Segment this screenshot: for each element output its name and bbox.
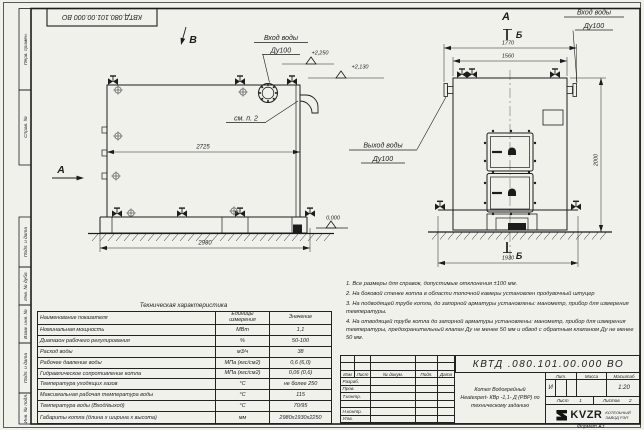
inlet-water-dn-front: Ду100 [583,23,604,30]
tech-row-unit: МПа (кгс/см2) [216,358,270,369]
document-title-line: Котел Водогрейный [474,386,525,394]
tech-row-value: 38 [270,347,331,358]
margin-label: Подп. и дата [23,227,29,257]
note-2: 2. На боковой стенке котла в области топ… [346,290,638,298]
margin-label: Инв. № подл. [23,394,29,424]
dim-2980: 2980 [197,241,212,247]
front-view [428,70,612,260]
view-letter-a: А [501,11,510,23]
tb-col-list: Лист [355,371,371,378]
tb-row-prov: Пров. [341,386,371,393]
front-view-texts: А Б Б 1770 1560 2000 1930 Вход воды Ду10… [363,9,612,262]
elev-2250: +2,250 [312,51,330,57]
kvzr-logo-icon [556,410,567,421]
tech-row-name: Температура уходящих газов [38,379,216,390]
tb-lit-value: И [546,380,556,397]
margin-labels: Перв. примен. Справ. № Подп. и дата Инв.… [23,33,29,423]
tech-row-name: Температура воды (Вход/выход) [38,401,216,412]
margin-label: Взам. инв. № [23,309,29,339]
tech-row-unit: МПа (кгс/см2) [216,369,270,380]
margin-label: Перв. примен. [23,33,29,65]
tech-row-name: Расход воды [38,347,216,358]
margin-label: Подп. и дата [23,353,29,383]
tb-sheets-label: Листов [603,398,620,403]
tech-table: Наименование показателя Единицы измерени… [37,311,332,424]
elev-2130: +2,130 [352,65,370,71]
section-letter-b-top: Б [516,30,523,40]
tech-row-name: Диапазон рабочего регулирования [38,336,216,347]
tb-sheet-value: 1 [579,398,582,403]
top-stamp-number: КВТД.080.101.00.000 ВО [62,13,142,20]
inlet-water-label-front: Вход воды [577,9,612,17]
tb-lit-value-row: И 1:20 [546,380,641,397]
tb-row-razrab: Разраб. [341,378,371,385]
tech-row-name: Максимальная рабочая температура воды [38,390,216,401]
tb-mass-value [577,380,607,397]
tech-row-unit: °С [216,379,270,390]
kvzr-logo-text: KVZR [570,409,602,421]
format-label: Формат А3 [577,424,604,430]
tech-row-value: 70/95 [270,401,331,412]
notes-block: 1. Все размеры для справок, допустимые о… [346,280,638,344]
tech-row-name: Габариты котла (длина х ширина х высота) [38,412,216,423]
tb-col-data: Дата [438,371,455,378]
tech-row-unit: °С [216,401,270,412]
tech-row-unit: МВт [216,325,270,336]
tech-row-value: 0,6 (6,0) [270,358,331,369]
tech-row-unit: °С [216,390,270,401]
tech-row-name: Рабочее давление воды [38,358,216,369]
tech-row-value: не более 250 [270,379,331,390]
title-block-revision-grid: Изм Лист № докум. Подп. Дата Разраб. Про… [341,356,455,423]
side-view-fittings [108,76,315,218]
view-letter-a-arrow: А [56,164,65,176]
tech-table-header: Единицы измерения [216,312,270,325]
tech-row-unit: мм [216,412,270,423]
org-name-line: ЗАВОД РЭП [605,415,630,420]
side-view-texts: 2725 2980 +2,250 +2,130 0,000 Вход воды … [56,34,369,247]
note-1: 1. Все размеры для справок, допустимые о… [346,280,638,288]
tb-scale-label: Масштаб [607,373,641,380]
note-4: 4. На отводящей трубе котла до запорной … [346,318,638,343]
tb-col-docnum: № докум. [371,371,416,378]
dim-1560: 1560 [502,54,515,60]
tb-col-podp: Подп. [416,371,438,378]
tb-row-empty [341,401,371,408]
see-note-2: см. п. 2 [234,116,258,123]
outlet-water-dn: Ду100 [372,156,393,163]
tech-row-name: Гидравлическое сопротивление котла [38,369,216,380]
tb-row-utv: Утв. [341,416,371,423]
tech-table-header: Значение [270,312,331,325]
front-view-fittings [435,69,581,210]
side-view [88,84,334,242]
tech-row-unit: % [216,336,270,347]
outlet-water-label: Выход воды [363,142,403,150]
tech-row-name: Номинальная мощность [38,325,216,336]
tb-row-nkontr: Н.контр. [341,408,371,415]
margin-label: Справ. № [23,116,29,138]
top-stamp: КВТД.080.101.00.000 ВО [47,9,157,27]
tb-row-tkontr: Т.контр. [341,393,371,400]
tb-scale-value: 1:20 [607,380,641,397]
tech-table-title: Техническая характеристика [37,302,330,309]
tb-lit-header-row: Лит. Масса Масштаб [546,373,641,380]
tb-lit-label: Лит. [546,373,577,380]
document-number: КВТД .080.101.00.000 ВО [455,356,641,373]
tech-row-value: 50-100 [270,336,331,347]
section-letter-b-bottom: Б [516,251,523,261]
title-block: Изм Лист № докум. Подп. Дата Разраб. Про… [340,355,640,424]
tech-row-value: 1,1 [270,325,331,336]
tb-col-izm: Изм [341,371,355,378]
note-3: 3. На подводящей трубе котла, до запорно… [346,300,638,317]
tb-sheets-value: 2 [629,398,632,403]
view-letter-b: В [189,34,197,46]
tb-mass-label: Масса [577,373,607,380]
dim-2725: 2725 [195,145,210,151]
tech-row-value: 0,06 (0,6) [270,369,331,380]
margin-label: Инв. № дубл. [23,271,29,301]
document-title: Котел Водогрейный Heatexpert- КВр -1,1- … [455,373,546,423]
dim-1930: 1930 [502,256,515,262]
tech-table-header: Наименование показателя [38,312,216,325]
tb-organization: KVZR КОТЕЛЬНЫЙ ЗАВОД РЭП [546,405,641,425]
inlet-water-dn: Ду100 [270,48,291,55]
tech-row-value: 115 [270,390,331,401]
drawing-sheet: Перв. примен. Справ. № Подп. и дата Инв.… [0,0,644,430]
dim-1770: 1770 [502,41,515,47]
document-title-line: Heatexpert- КВр -1,1- Д (РВР) по [460,394,539,402]
tb-sheet-row: Лист 1 Листов 2 [546,397,641,405]
elev-zero: 0,000 [326,216,341,222]
document-title-line: техническому заданию [471,402,529,410]
dim-2000: 2000 [594,153,600,167]
tech-row-unit: м3/ч [216,347,270,358]
inlet-water-label: Вход воды [264,34,299,42]
tech-row-value: 2980х1930х2250 [270,412,331,423]
tb-sheet-label: Лист [557,398,569,403]
